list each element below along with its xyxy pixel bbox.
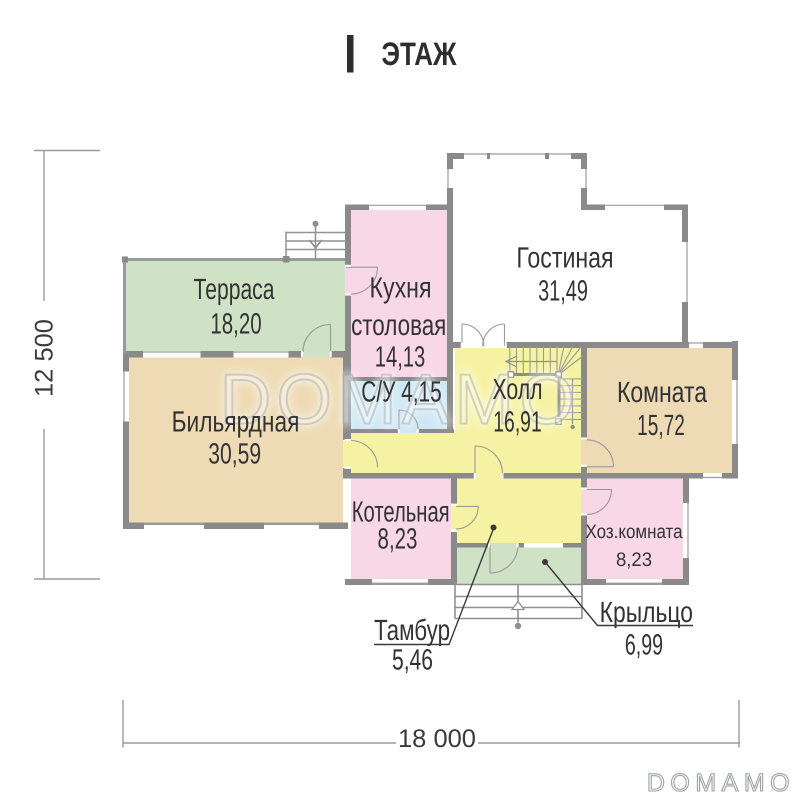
svg-text:Комната: Комната xyxy=(617,376,708,409)
svg-text:С/У 4,15: С/У 4,15 xyxy=(361,376,442,409)
svg-text:Холл: Холл xyxy=(492,373,542,406)
svg-text:Кухня: Кухня xyxy=(370,272,432,305)
svg-text:5,46: 5,46 xyxy=(392,644,433,677)
svg-text:столовая: столовая xyxy=(351,309,446,342)
svg-text:DOMAMO: DOMAMO xyxy=(647,769,795,797)
svg-text:16,91: 16,91 xyxy=(493,406,541,439)
svg-text:Крыльцо: Крыльцо xyxy=(600,596,693,629)
svg-text:Бильярдная: Бильярдная xyxy=(172,406,300,439)
svg-text:8,23: 8,23 xyxy=(378,523,418,556)
svg-text:15,72: 15,72 xyxy=(637,409,685,442)
svg-text:6,99: 6,99 xyxy=(625,629,663,662)
svg-text:30,59: 30,59 xyxy=(208,438,261,471)
svg-text:12 500: 12 500 xyxy=(31,319,59,397)
svg-text:Терраса: Терраса xyxy=(194,273,275,306)
svg-text:14,13: 14,13 xyxy=(375,341,426,374)
svg-text:Тамбур: Тамбур xyxy=(374,614,450,647)
svg-text:31,49: 31,49 xyxy=(538,275,588,308)
svg-text:8,23: 8,23 xyxy=(616,549,652,571)
svg-text:18,20: 18,20 xyxy=(210,308,261,341)
svg-text:ЭТАЖ: ЭТАЖ xyxy=(381,36,457,72)
svg-text:Хоз.комната: Хоз.комната xyxy=(585,521,682,543)
svg-text:Гостиная: Гостиная xyxy=(516,242,613,275)
svg-text:18 000: 18 000 xyxy=(398,725,476,753)
